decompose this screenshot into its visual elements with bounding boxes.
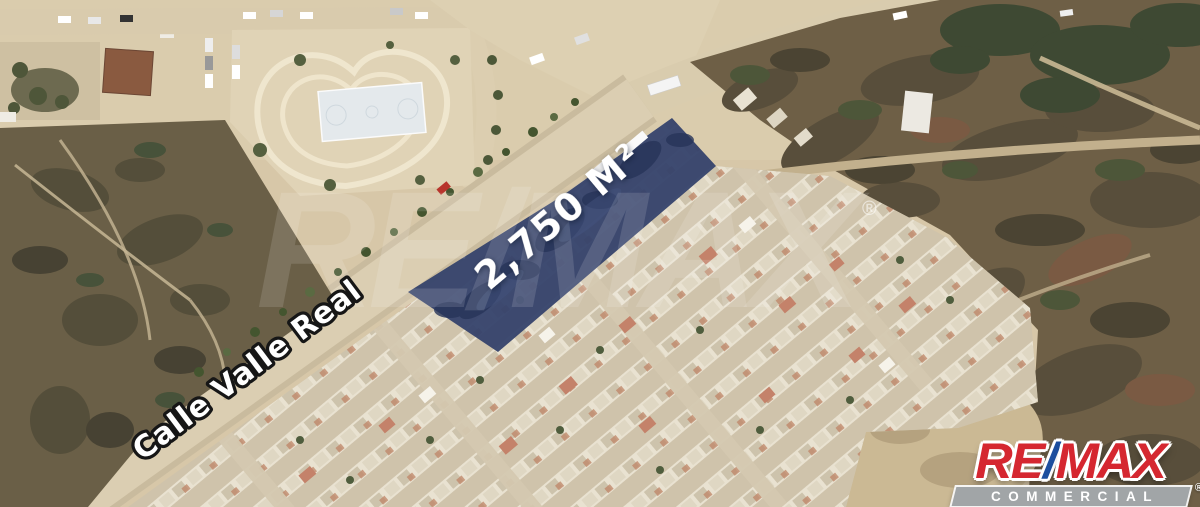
registered-trademark-icon: ® — [1195, 482, 1200, 494]
logo-max: MAX — [1056, 433, 1165, 489]
parcel-area-label: 2,750 M² — [466, 134, 650, 299]
street-label: Calle Valle Real — [126, 273, 368, 468]
remax-commercial-logo: RE/MAX COMMERCIAL ® — [946, 438, 1194, 506]
map-labels: Calle Valle Real 2,750 M² — [0, 0, 1200, 507]
logo-commercial-text: COMMERCIAL — [984, 489, 1159, 504]
logo-re: RE — [975, 433, 1043, 489]
logo-commercial-bar: COMMERCIAL — [952, 487, 1191, 506]
logo-slash-icon: / — [1043, 433, 1055, 489]
listing-aerial-photo: RE/MAX ® Calle Valle Real 2,750 M² RE/MA… — [0, 0, 1200, 507]
logo-wordmark: RE/MAX — [941, 438, 1199, 484]
